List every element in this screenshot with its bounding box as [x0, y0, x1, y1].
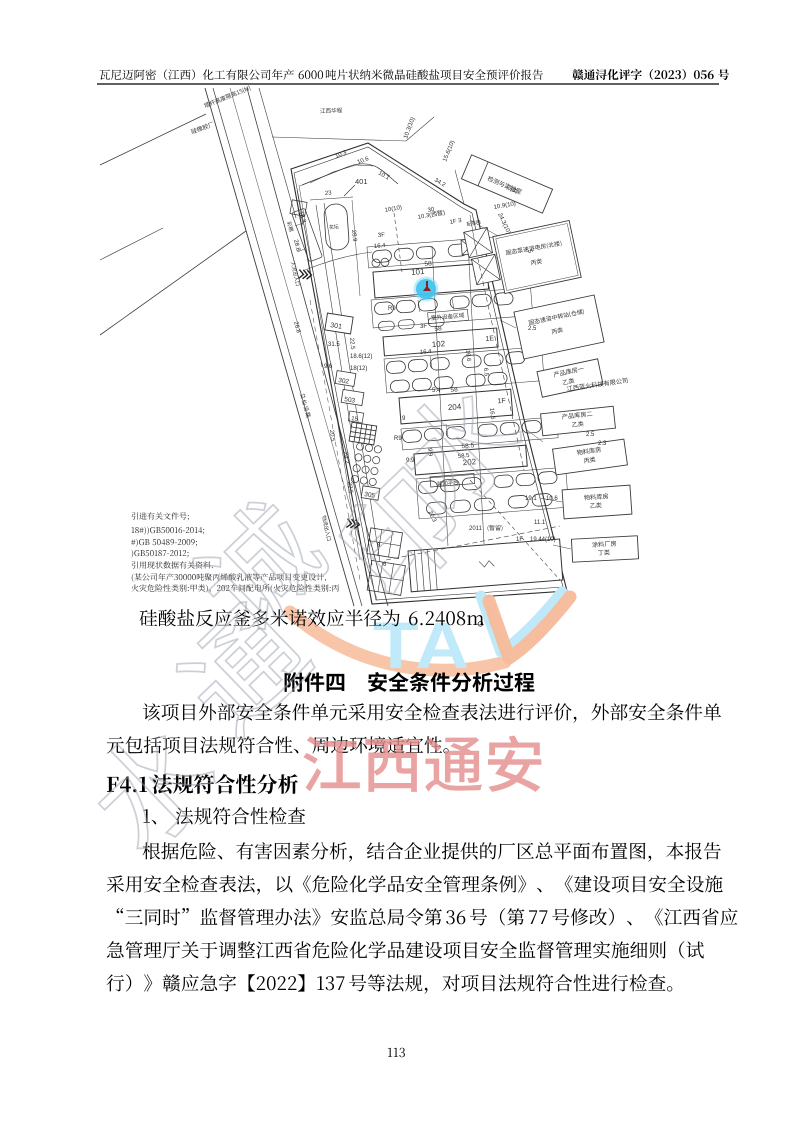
svg-text:18(12): 18(12) [350, 366, 367, 372]
svg-text:28.9: 28.9 [350, 230, 357, 243]
svg-text:6.5: 6.5 [482, 368, 489, 378]
svg-text:1F: 1F [497, 398, 506, 406]
svg-text:22.5: 22.5 [348, 338, 355, 351]
svg-text:24.2: 24.2 [342, 452, 349, 465]
svg-text:19.44(10): 19.44(10) [530, 537, 556, 543]
svg-text:401: 401 [355, 177, 368, 186]
svg-text:R9: R9 [394, 436, 402, 442]
svg-text:58: 58 [434, 325, 442, 333]
svg-text:204: 204 [448, 402, 463, 412]
svg-text:101: 101 [411, 267, 426, 277]
svg-text:23: 23 [325, 190, 333, 196]
svg-text:58: 58 [450, 386, 458, 394]
svg-text:18.6(12): 18.6(12) [350, 354, 372, 360]
svg-text:102: 102 [431, 339, 446, 349]
svg-text:2.3: 2.3 [598, 441, 607, 447]
svg-text:2.5: 2.5 [586, 432, 595, 438]
svg-text:11.1: 11.1 [534, 520, 546, 526]
svg-text:16.4: 16.4 [420, 349, 433, 356]
svg-text:58: 58 [424, 260, 432, 268]
svg-text:16.4: 16.4 [374, 243, 387, 250]
svg-text:TA: TA [373, 608, 471, 682]
svg-text:5.4: 5.4 [432, 388, 441, 394]
svg-text:3F: 3F [420, 324, 427, 330]
svg-text:1E: 1E [485, 335, 494, 343]
svg-text:19.1: 19.1 [525, 496, 537, 502]
svg-text:22.5: 22.5 [346, 482, 353, 495]
svg-text:31.5: 31.5 [328, 342, 340, 348]
svg-text:10.6: 10.6 [546, 496, 558, 502]
svg-text:16.6: 16.6 [464, 350, 471, 363]
svg-text:9.6: 9.6 [324, 364, 333, 370]
svg-text:2011: 2011 [469, 526, 483, 532]
svg-text:16.5: 16.5 [488, 408, 495, 421]
svg-text:R9: R9 [388, 306, 396, 312]
svg-text:2.5: 2.5 [528, 326, 537, 332]
svg-text:3F: 3F [378, 232, 386, 239]
